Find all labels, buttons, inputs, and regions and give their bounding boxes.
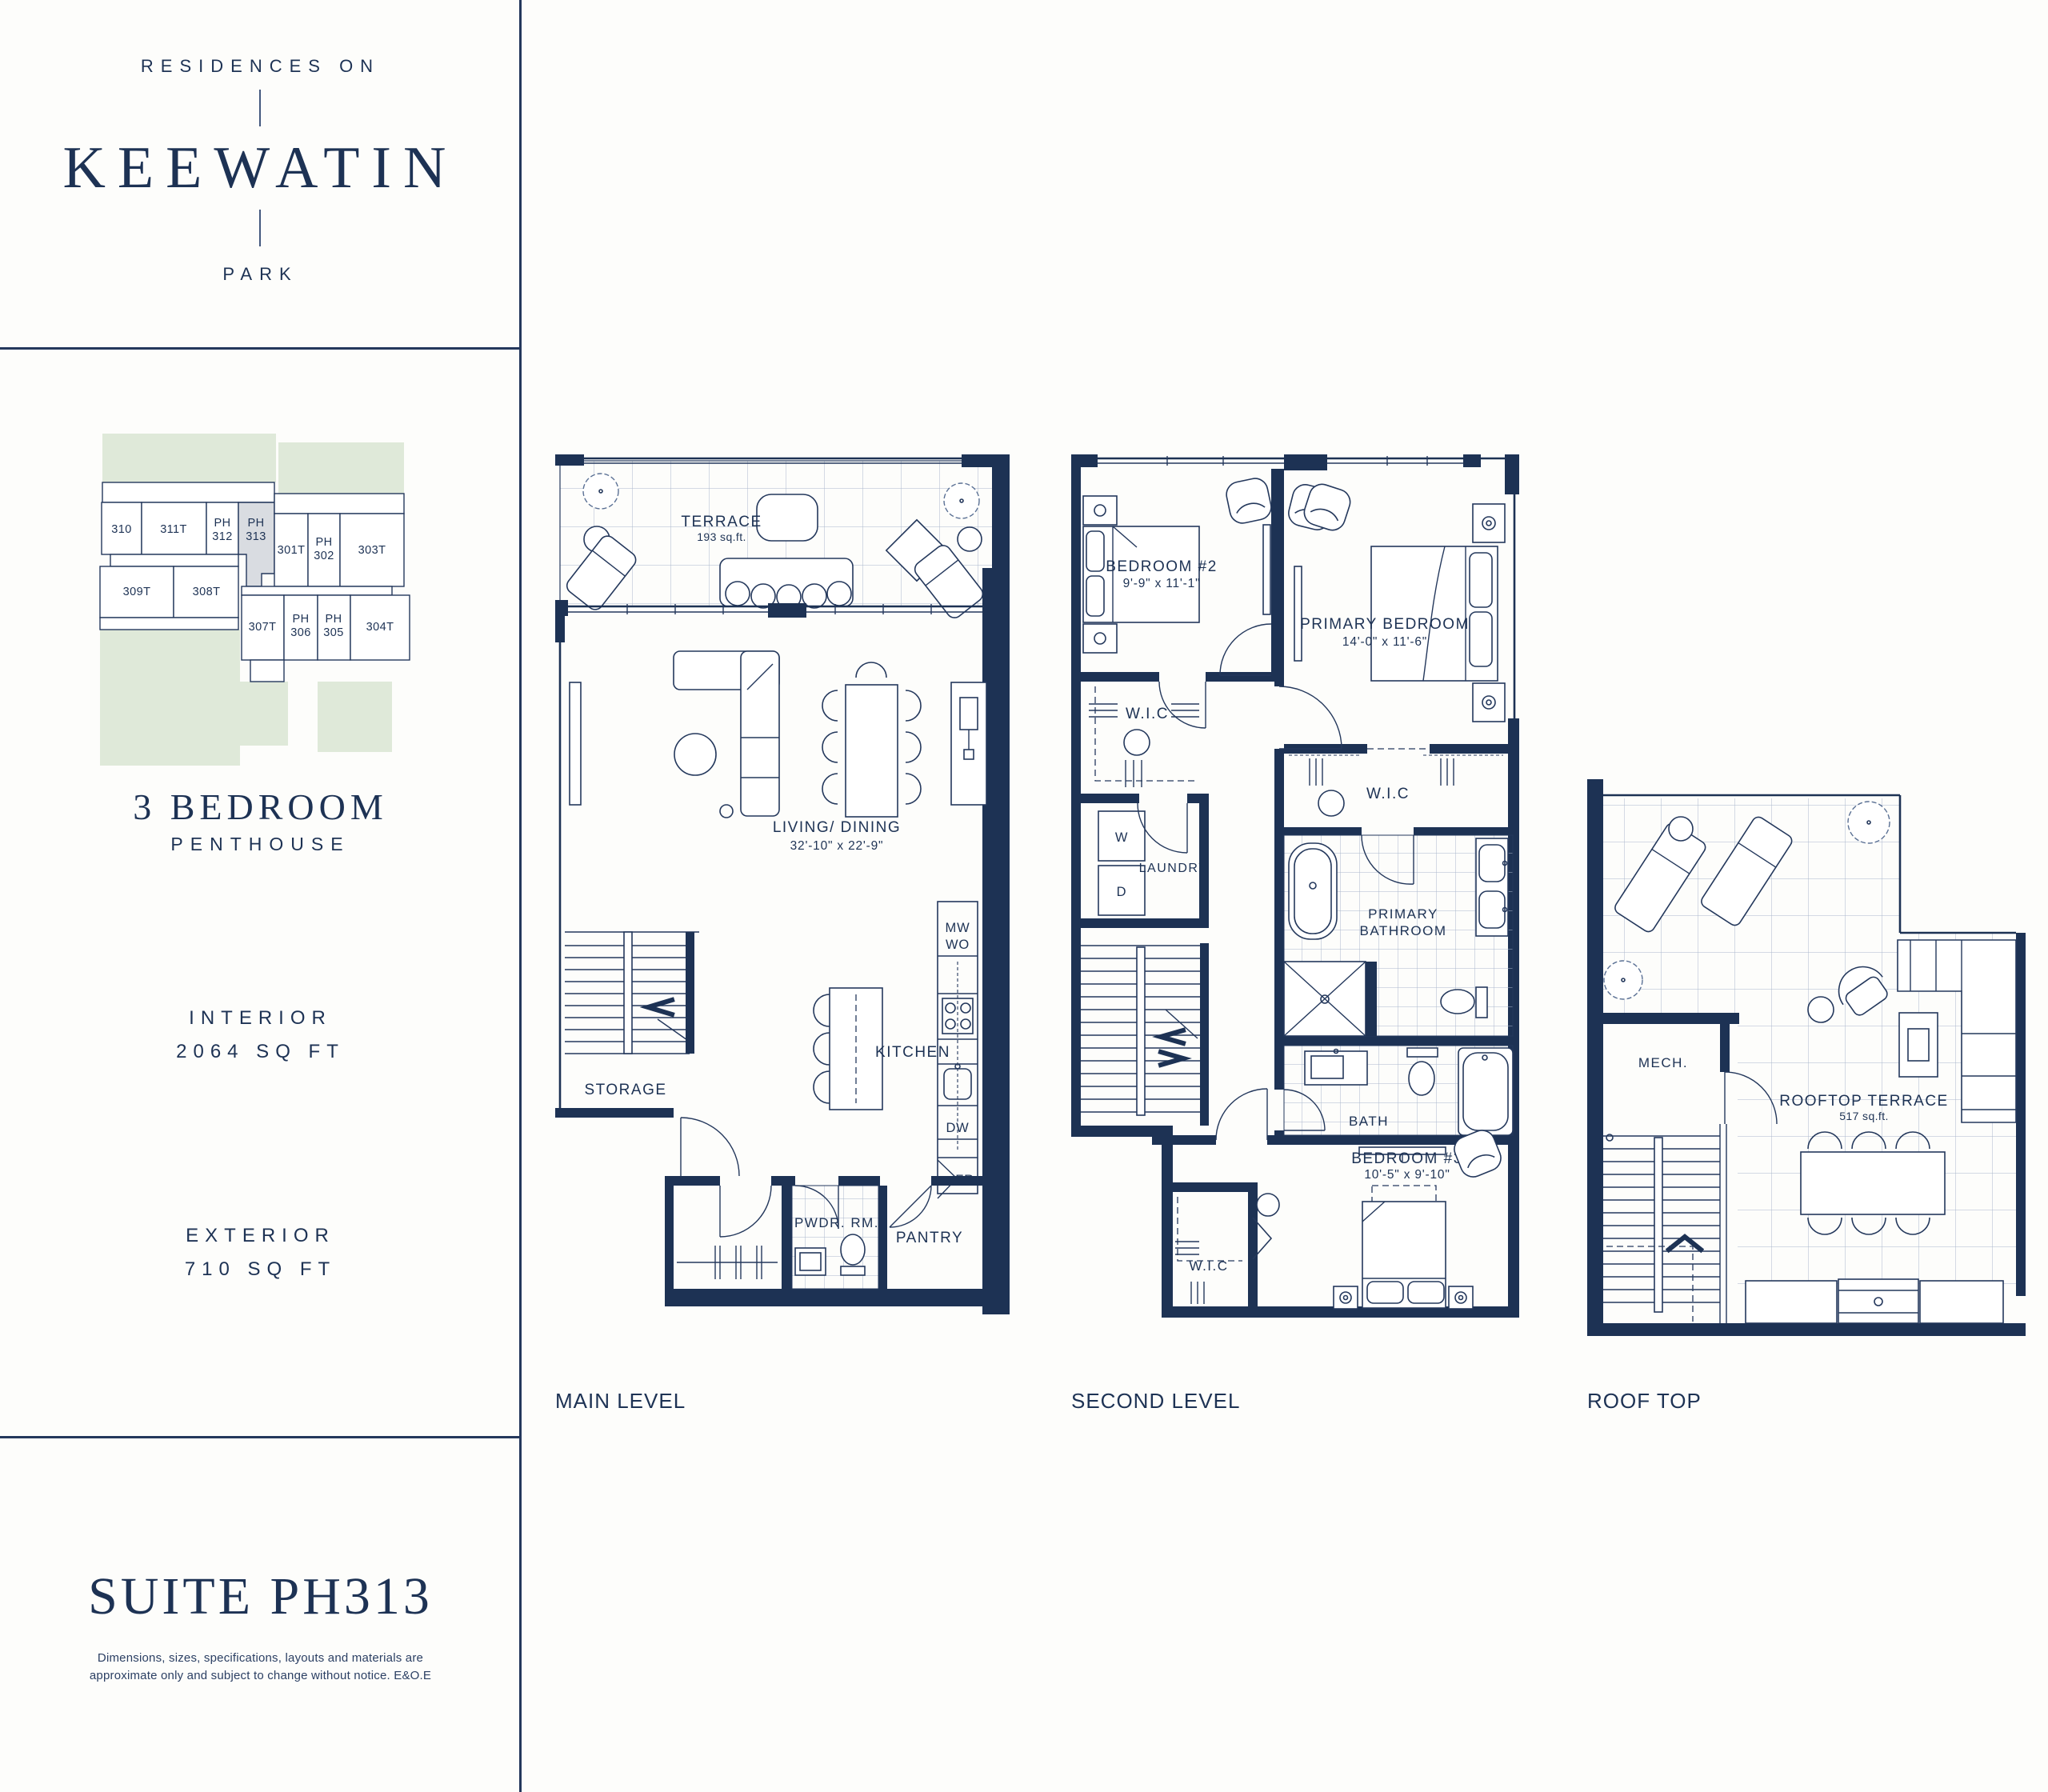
bedroom3-label: BEDROOM #3 (1351, 1150, 1463, 1167)
brand-residences-on: RESIDENCES ON (0, 56, 521, 77)
primary-bedroom-label: PRIMARY BEDROOM (1300, 616, 1470, 633)
main-level-caption: MAIN LEVEL (555, 1389, 686, 1414)
floorplan-second-level: BEDROOM #2 9'-9" x 11'-1" PRIMARY BEDROO… (1071, 450, 1519, 1326)
second-level-stairs (1081, 946, 1200, 1115)
kitchen-label: KITCHEN (875, 1044, 950, 1061)
roof-top-caption: ROOF TOP (1587, 1389, 1702, 1414)
laundry-label: LAUNDRY (1139, 862, 1209, 875)
suite-subtype: PENTHOUSE (0, 834, 521, 855)
floorplan-brochure-page: RESIDENCES ON KEEWATIN PARK (0, 0, 2048, 1792)
wic2-label: W.I.C (1366, 786, 1410, 802)
rooftop-terrace-label: ROOFTOP TERRACE (1779, 1093, 1948, 1110)
second-bathroom: BATH (1284, 1046, 1513, 1135)
rooftop-stairs (1603, 1124, 1726, 1323)
main-stairs-storage: STORAGE (555, 932, 699, 1118)
bedroom2-label: BEDROOM #2 (1106, 558, 1218, 575)
floorplan-main-level: TERRACE 193 sq.ft. (555, 450, 1010, 1326)
brand-tick-top (259, 90, 261, 126)
unit-ph305-l1: PH (326, 613, 342, 626)
walk-in-closet-2: W.I.C (1289, 749, 1503, 816)
key-plan-unit-ph313-highlight (238, 502, 274, 586)
entry-door-swing (681, 1118, 739, 1176)
unit-ph302-l1: PH (316, 536, 333, 549)
unit-307t: 307T (249, 621, 277, 634)
walk-in-closet-1: W.I.C (1089, 682, 1206, 787)
bedroom2-dim: 9'-9" x 11'-1" (1123, 577, 1201, 590)
key-plan: 310 311T PH 312 PH 313 301T PH 302 303T … (80, 424, 416, 768)
interior-label: INTERIOR (0, 1007, 521, 1030)
washer-label: W (1115, 830, 1128, 845)
appliance-wo: WO (946, 938, 970, 952)
main-kitchen: KITCHEN MW WO DW FR (814, 902, 978, 1198)
unit-ph312-l1: PH (214, 517, 231, 530)
unit-ph313-l2: 313 (246, 530, 266, 543)
unit-303t: 303T (358, 544, 386, 557)
powder-toilet (841, 1234, 865, 1275)
tv-console (570, 682, 581, 805)
exterior-label: EXTERIOR (0, 1225, 521, 1247)
primary-bath-label2: BATHROOM (1360, 923, 1447, 938)
pantry-label: PANTRY (896, 1230, 963, 1246)
appliance-mw: MW (946, 921, 970, 935)
bbq (1838, 1279, 1918, 1323)
unit-304t: 304T (366, 621, 394, 634)
unit-309t: 309T (123, 586, 151, 598)
rooftop-terrace-area: 517 sq.ft. (1839, 1110, 1889, 1122)
laundry: W D LAUNDRY (1098, 803, 1208, 915)
living-dim: 32'-10" x 22'-9" (790, 839, 884, 853)
main-terrace: TERRACE 193 sq.ft. (555, 454, 1010, 621)
disclaimer-line2: approximate only and subject to change w… (0, 1667, 521, 1684)
sidebar-divider-top (0, 347, 521, 350)
unit-ph306-l2: 306 (290, 626, 310, 639)
unit-ph305-l2: 305 (323, 626, 343, 639)
brand-tick-bottom (259, 210, 261, 246)
primary-bathroom: PRIMARY BATHROOM (1284, 835, 1513, 1036)
coffee-table (674, 734, 716, 775)
bath-label: BATH (1349, 1114, 1389, 1129)
second-level-caption: SECOND LEVEL (1071, 1389, 1240, 1414)
freestanding-tub (1289, 843, 1337, 939)
unit-ph312-l2: 312 (212, 530, 232, 543)
bedroom3-dim: 10'-5" x 9'-10" (1364, 1168, 1450, 1182)
dining-table (822, 662, 921, 817)
sidebar-divider-bottom (0, 1436, 521, 1438)
unit-310: 310 (111, 523, 131, 536)
unit-ph302-l2: 302 (314, 550, 334, 562)
wic1-label: W.I.C (1126, 706, 1169, 722)
terrace-area: 193 sq.ft. (697, 530, 746, 543)
unit-311t: 311T (160, 523, 187, 536)
unit-308t: 308T (193, 586, 221, 598)
storage-label: STORAGE (584, 1082, 666, 1098)
dryer-label: D (1117, 885, 1127, 899)
unit-ph313-l1: PH (248, 517, 265, 530)
appliance-dw: DW (946, 1121, 969, 1135)
mech-label: MECH. (1638, 1055, 1688, 1070)
brand-name: KEEWATIN (0, 134, 521, 202)
floorplan-roof-top: MECH. ROOFTOP TERRACE 517 sq.ft. (1587, 768, 2035, 1364)
stair-direction-arrow (648, 1000, 672, 1014)
primary-bedroom: PRIMARY BEDROOM 14'-0" x 11'-6" (1279, 481, 1505, 749)
brand-park: PARK (0, 264, 521, 285)
unit-ph306-l1: PH (293, 613, 310, 626)
suite-title: SUITE PH313 (0, 1566, 521, 1627)
suite-type: 3 BEDROOM (0, 786, 521, 828)
primary-bath-label1: PRIMARY (1368, 906, 1438, 922)
interior-value: 2064 SQ FT (0, 1041, 521, 1063)
terrace-label: TERRACE (681, 514, 762, 530)
walk-in-closet-3: W.I.C (1175, 1194, 1279, 1304)
exterior-value: 710 SQ FT (0, 1258, 521, 1281)
disclaimer-line1: Dimensions, sizes, specifications, layou… (0, 1650, 521, 1666)
bath2-tub (1458, 1048, 1513, 1135)
primary-bedroom-dim: 14'-0" x 11'-6" (1342, 635, 1427, 649)
terrace-door (768, 603, 806, 618)
living-label: LIVING/ DINING (773, 819, 901, 836)
shower (1284, 962, 1377, 1036)
unit-301t: 301T (278, 544, 306, 557)
